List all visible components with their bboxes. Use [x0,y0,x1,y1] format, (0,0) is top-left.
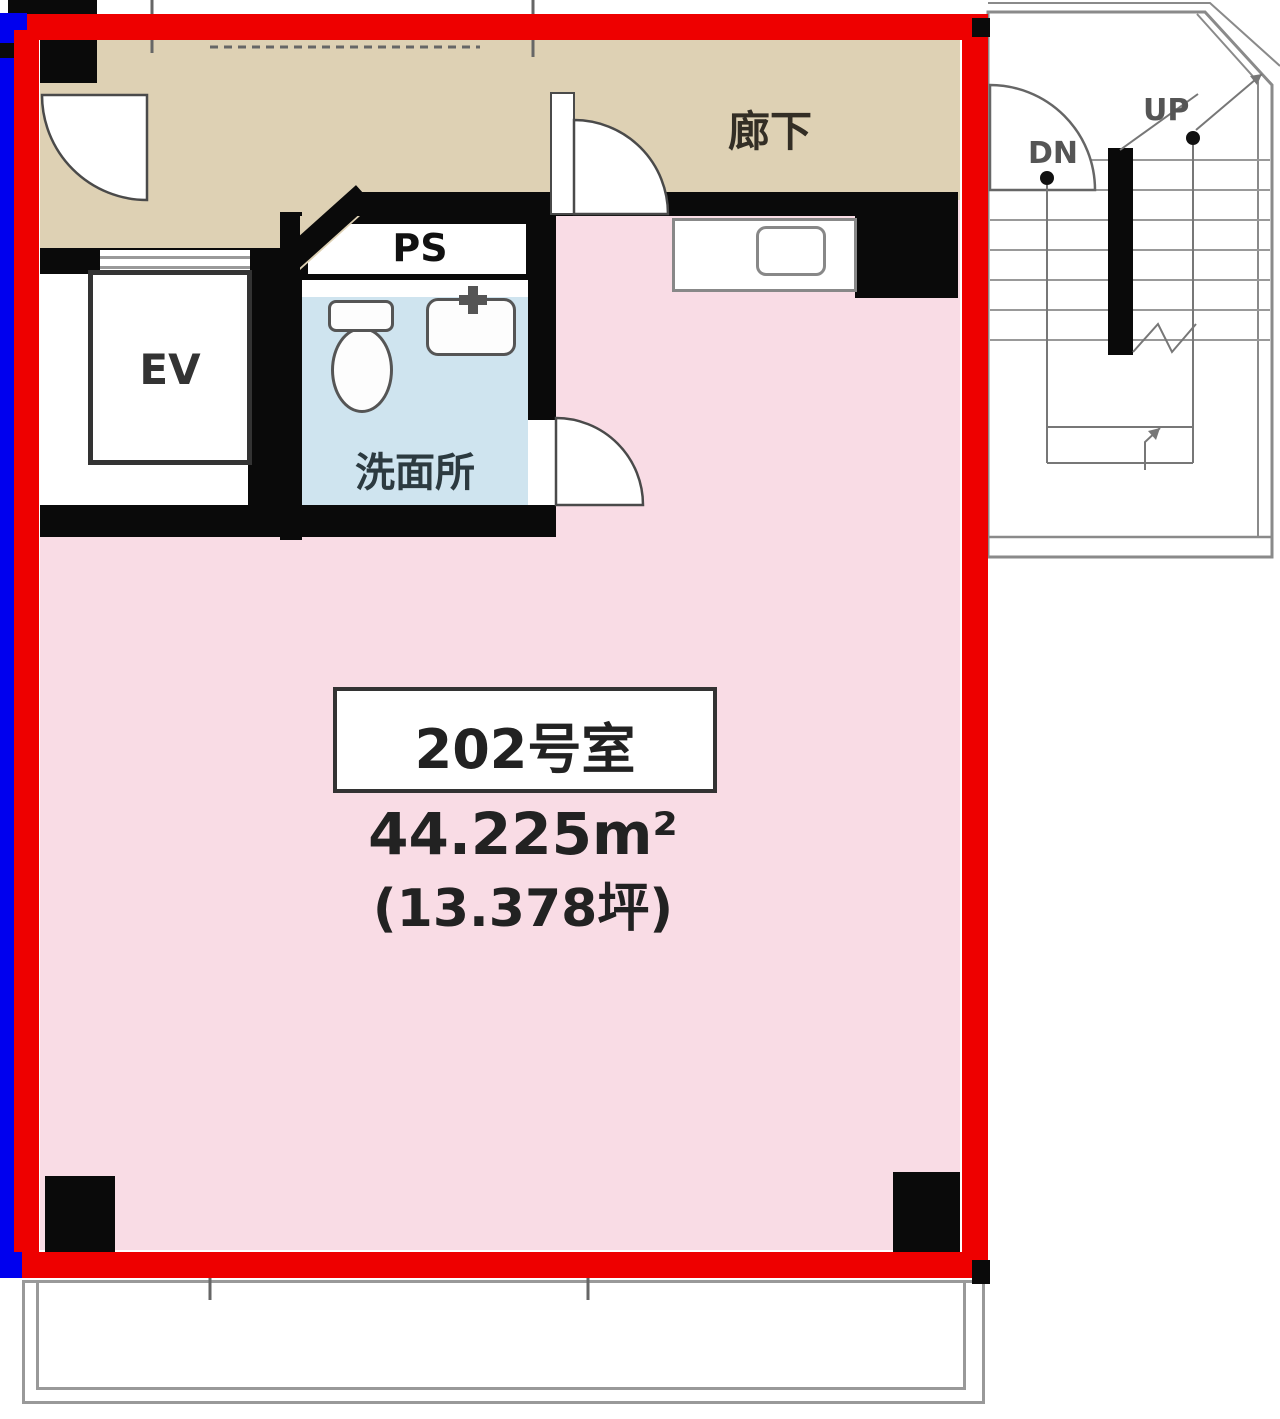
adjacent-border-bottom-nib [0,1252,22,1278]
corner-mark-bottom-right [972,1260,990,1284]
adjacent-border-top-nib [0,13,27,30]
floor-plan: UP DN 廊下 PS EV 洗面所 202号室 44.225m² (13.37… [0,0,1280,1419]
unit-highlight-border [13,14,988,1278]
adjacent-border-left [0,13,14,1278]
wall-left-edge-notch [0,43,14,58]
staircase: UP DN [988,3,1280,557]
corner-mark-top-right [972,18,990,37]
stairs-up-label: UP [1143,93,1189,128]
up-start-dot [1186,131,1200,145]
stairs-down-label: DN [1028,136,1078,171]
dn-start-dot [1040,171,1054,185]
stair-center-wall [1108,148,1133,355]
